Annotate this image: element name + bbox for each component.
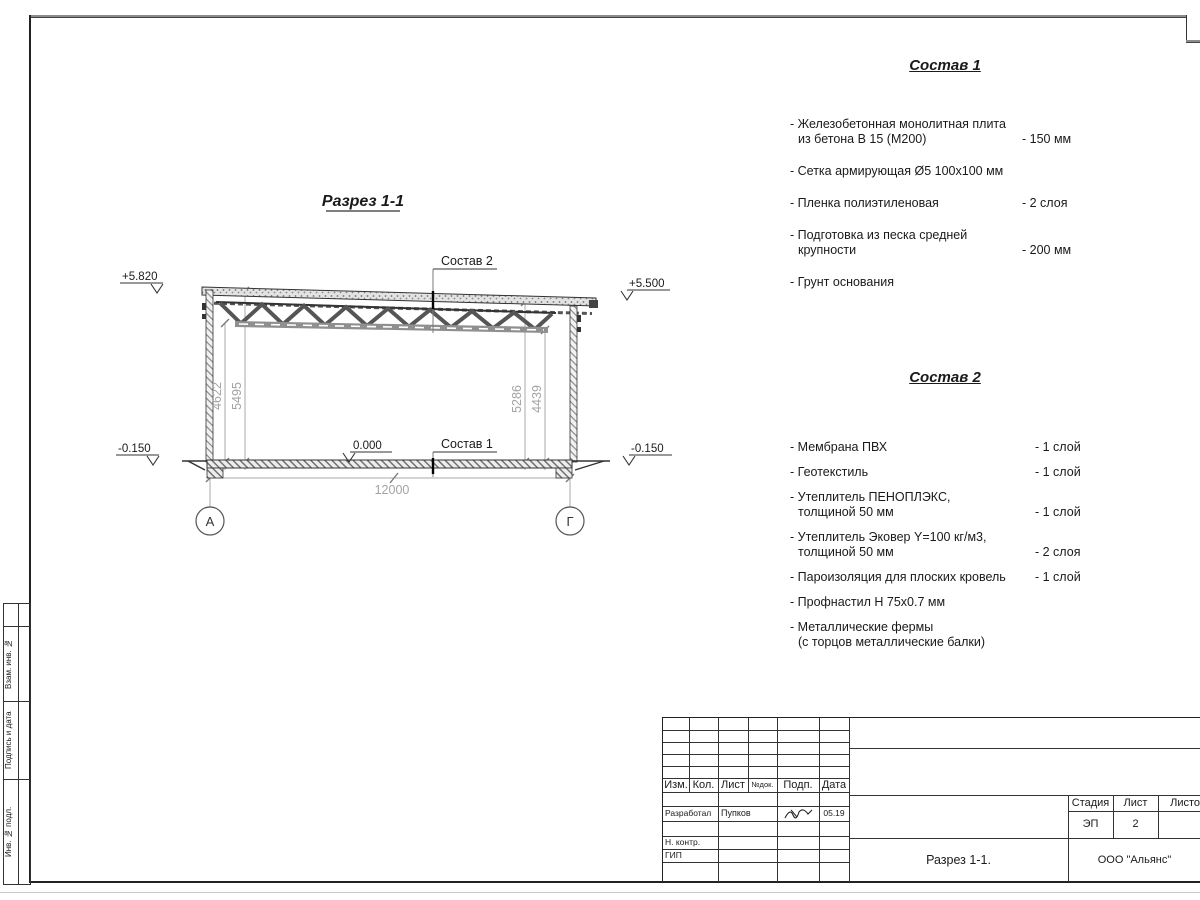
left-wall — [206, 290, 213, 462]
titleblock-col-podp: Подп. — [777, 778, 819, 792]
titleblock-sheet-value: 2 — [1113, 811, 1158, 838]
list-item: - Профнастил Н 75х0.7 мм — [790, 595, 1200, 610]
titleblock-stage-value: ЭП — [1068, 811, 1113, 838]
callout-roof-label: Состав 2 — [441, 254, 493, 268]
right-footing — [556, 468, 572, 478]
stamp-label-vzam-inv: Взам. инв. № — [4, 627, 18, 701]
titleblock-ncontr-role: Н. контр. — [665, 836, 718, 849]
stamp-label-inv-podl: Инв. № подл. — [4, 780, 18, 884]
titleblock-sheet-label: Лист — [1113, 795, 1158, 811]
composition1-title: Состав 1 — [790, 57, 1100, 74]
elevation-ground-left: -0.150 — [118, 443, 151, 455]
section-drawing: Разрез 1-1 — [0, 0, 720, 560]
list-item: - Мембрана ПВХ - 1 слой — [790, 440, 1200, 455]
frame-top-right-notch-h — [1186, 40, 1200, 43]
floor-slab — [207, 460, 572, 468]
elevation-ground-right: -0.150 — [631, 443, 664, 455]
callout-floor-label: Состав 1 — [441, 437, 493, 451]
titleblock-stage-label: Стадия — [1068, 795, 1113, 811]
titleblock-col-list: Лист — [718, 778, 748, 792]
list-item: - Геотекстиль - 1 слой — [790, 465, 1200, 480]
elevation-roof-right: +5.500 — [629, 278, 665, 290]
titleblock-col-ndok: №док. — [748, 778, 777, 792]
dim-right-inner: 5286 — [510, 385, 524, 413]
elevation-roof-left: +5.820 — [122, 271, 158, 283]
titleblock-doc-name: Разрез 1-1. — [849, 838, 1068, 882]
list-item: - Утеплитель ПЕНОПЛЭКС, толщиной 50 мм -… — [790, 490, 1200, 520]
composition1-list: - Железобетонная монолитная плита из бет… — [790, 117, 1200, 307]
list-item: - Металлические фермы (с торцов металлич… — [790, 620, 1200, 650]
titleblock-sheets-label: Листов — [1158, 795, 1200, 811]
list-item: - Пленка полиэтиленовая - 2 слоя — [790, 196, 1200, 211]
list-item: - Пароизоляция для плоских кровель - 1 с… — [790, 570, 1200, 585]
titleblock-developer-role: Разработал — [665, 806, 718, 821]
dim-right-outer: 4439 — [530, 385, 544, 413]
right-wall — [570, 306, 577, 462]
drawing-title: Разрез 1-1 — [322, 193, 404, 210]
titleblock-developer-name: Пупков — [721, 806, 777, 821]
titleblock-col-kol: Кол. — [689, 778, 718, 792]
list-item: - Железобетонная монолитная плита из бет… — [790, 117, 1200, 147]
page-edge-line — [0, 892, 1200, 893]
axis-letter-left: А — [206, 514, 215, 529]
list-item: - Утеплитель Эковер Y=100 кг/м3, толщино… — [790, 530, 1200, 560]
list-item: - Подготовка из песка средней крупности … — [790, 228, 1200, 258]
dim-left-inner: 4622 — [210, 382, 224, 410]
composition2-list: - Мембрана ПВХ - 1 слой - Геотекстиль - … — [790, 440, 1200, 660]
composition2-title: Состав 2 — [790, 369, 1100, 386]
frame-left-stamp-strip: Взам. инв. № Подпись и дата Инв. № подл. — [3, 603, 31, 885]
list-item: - Грунт основания — [790, 275, 1200, 290]
stamp-label-podpis-data: Подпись и дата — [4, 702, 18, 779]
drawing-sheet: Взам. инв. № Подпись и дата Инв. № подл.… — [0, 0, 1200, 900]
titleblock-col-data: Дата — [819, 778, 849, 792]
titleblock-col-izm: Изм. — [663, 778, 689, 792]
dim-span: 12000 — [375, 483, 410, 497]
titleblock-gip-role: ГИП — [665, 849, 718, 862]
titleblock-developer-date: 05.19 — [819, 806, 849, 821]
frame-top-right-notch-v — [1186, 15, 1187, 40]
elevation-zero: 0.000 — [353, 440, 382, 452]
left-footing — [207, 468, 223, 478]
titleblock-company: ООО "Альянс" — [1068, 838, 1200, 882]
dim-left-outer: 5495 — [230, 382, 244, 410]
list-item: - Сетка армирующая Ø5 100х100 мм — [790, 164, 1200, 179]
developer-signature — [781, 807, 815, 820]
axis-letter-right: Г — [566, 514, 573, 529]
title-block: Изм. Кол. Лист №док. Подп. Дата Разработ… — [662, 717, 1200, 883]
